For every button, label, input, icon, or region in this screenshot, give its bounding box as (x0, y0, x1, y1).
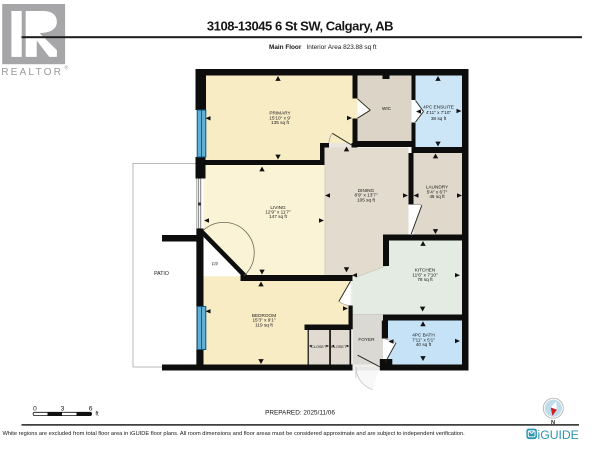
svg-text:Main Floor: Main Floor (269, 44, 302, 51)
svg-text:40 sq ft: 40 sq ft (416, 342, 432, 347)
svg-text:REALTOR: REALTOR (1, 67, 63, 78)
svg-text:78 sq ft: 78 sq ft (417, 277, 433, 282)
svg-text:F/P: F/P (212, 262, 219, 267)
svg-text:iGUIDE: iGUIDE (538, 428, 579, 442)
svg-text:135 sq ft: 135 sq ft (271, 120, 290, 125)
svg-text:45 sq ft: 45 sq ft (429, 194, 445, 199)
svg-text:White regions are excluded fro: White regions are excluded from total fl… (3, 431, 466, 437)
svg-text:Interior Area 823.88 sq ft: Interior Area 823.88 sq ft (307, 44, 377, 51)
svg-text:6: 6 (89, 406, 93, 413)
svg-text:ft: ft (95, 412, 99, 418)
svg-text:105 sq ft: 105 sq ft (357, 197, 376, 202)
svg-text:WIC: WIC (382, 106, 392, 111)
svg-text:0: 0 (33, 406, 37, 413)
svg-text:119 sq ft: 119 sq ft (255, 322, 273, 327)
svg-text:PREPARED: 2025/11/06: PREPARED: 2025/11/06 (265, 410, 335, 417)
svg-text:4'11" x 7'10": 4'11" x 7'10" (426, 110, 452, 115)
svg-text:3: 3 (61, 406, 65, 413)
svg-text:CLOSET: CLOSET (311, 345, 327, 349)
svg-text:PATIO: PATIO (154, 271, 169, 277)
svg-text:3108-13045 6 St SW, Calgary, A: 3108-13045 6 St SW, Calgary, AB (207, 19, 393, 34)
svg-text:®: ® (65, 65, 69, 72)
svg-text:N: N (551, 420, 555, 426)
svg-text:CLOSET: CLOSET (331, 345, 347, 349)
svg-text:4PC ENSUITE: 4PC ENSUITE (423, 104, 454, 109)
svg-text:38 sq ft: 38 sq ft (431, 116, 447, 121)
svg-text:FOYER: FOYER (358, 337, 375, 342)
svg-text:147 sq ft: 147 sq ft (269, 214, 288, 219)
